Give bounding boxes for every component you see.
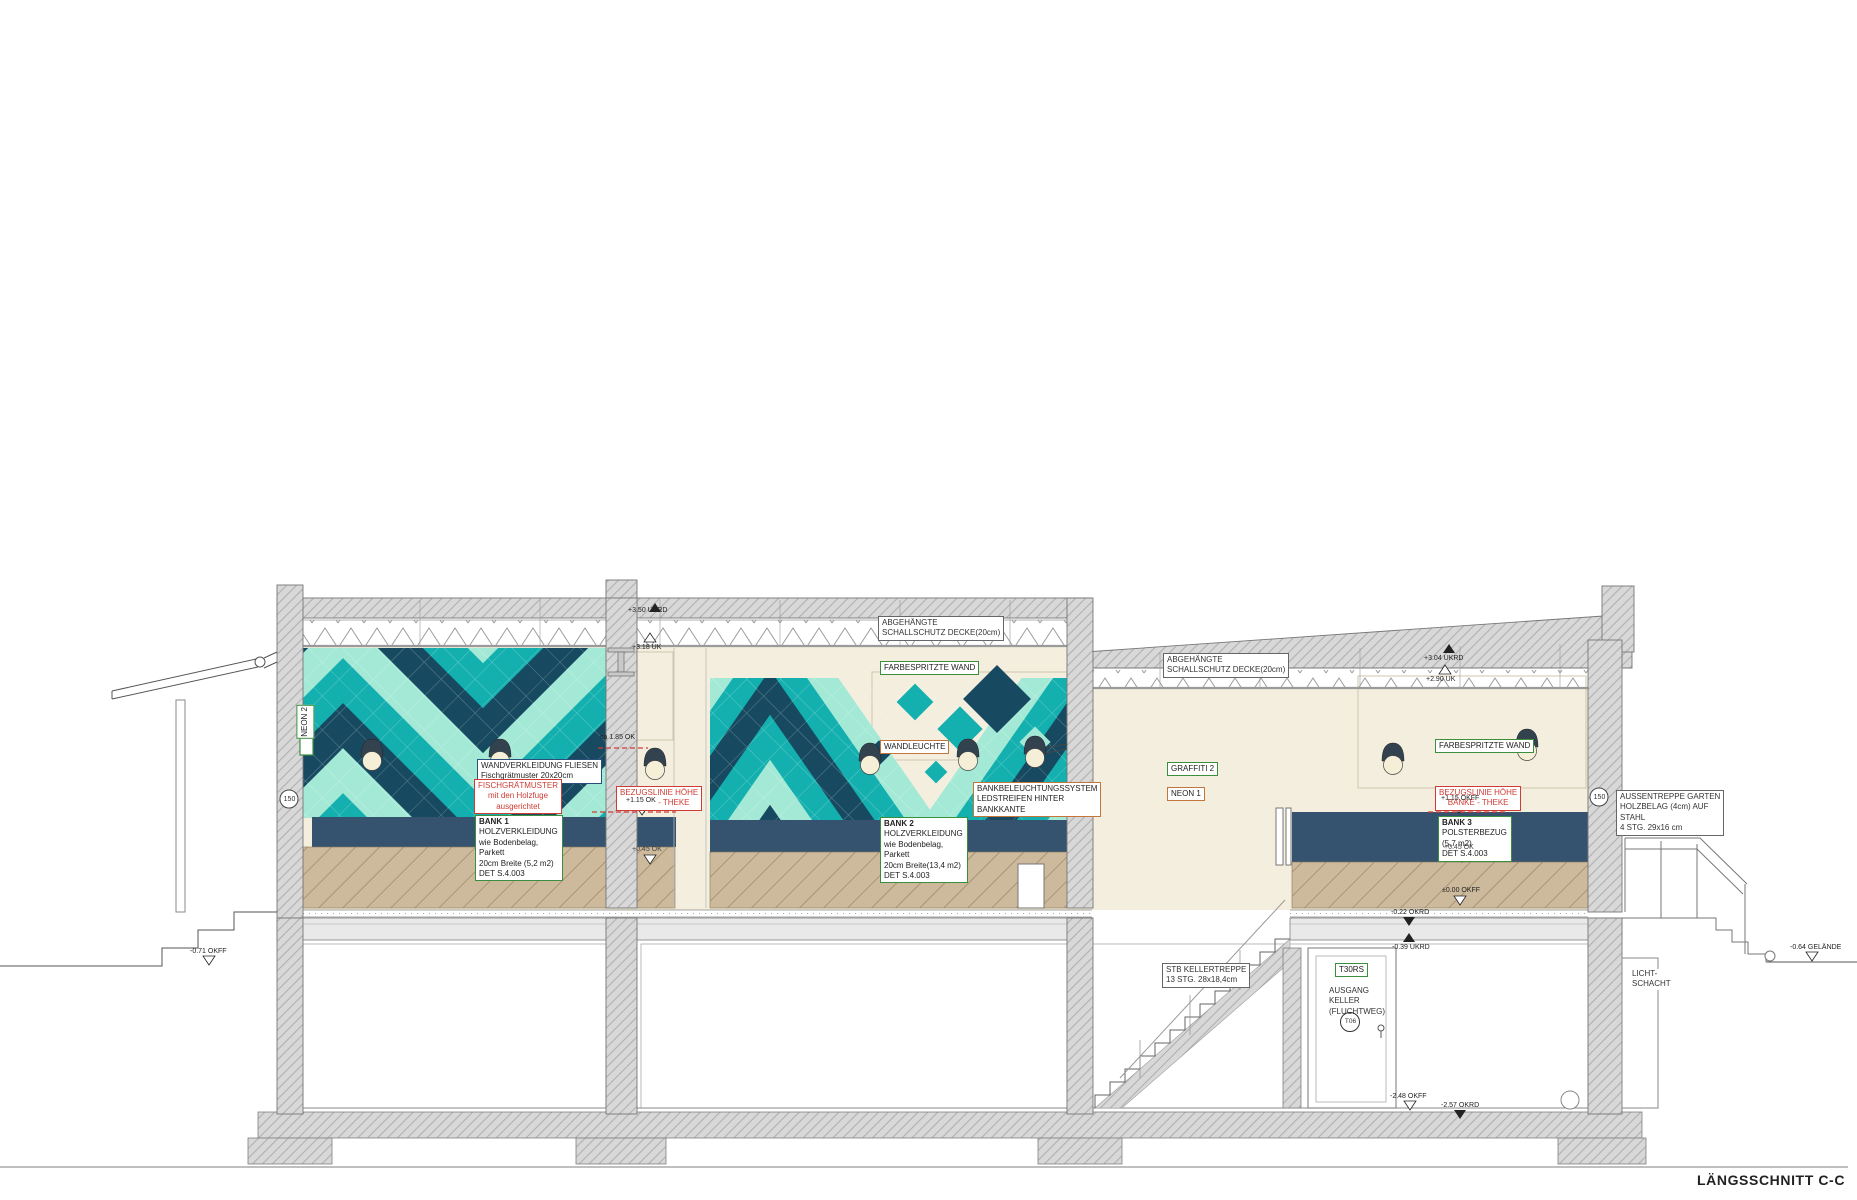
label-garden-stair: AUSSENTREPPE GARTEN HOLZBELAG (4cm) AUF …: [1616, 790, 1724, 836]
level-ceiling-uk-right: +2.90 UK: [1426, 675, 1455, 684]
label-door-tag: T06: [1342, 1018, 1359, 1026]
architectural-section-sheet: NEON 2 WANDVERKLEIDUNG FLIESEN Fischgrät…: [0, 0, 1857, 1200]
level-ground-right: -0.64 GELÄNDE: [1790, 943, 1841, 952]
label-bank1: BANK 1 HOLZVERKLEIDUNG wie Bodenbelag, P…: [475, 815, 563, 881]
level-slab-bottom: -0.39 UKRD: [1392, 943, 1430, 952]
footing: [248, 1138, 332, 1164]
tag-150-right: 150: [1593, 793, 1606, 802]
stair-guard-post: [1276, 808, 1283, 865]
garden-steps: [1700, 918, 1766, 962]
footing: [576, 1138, 666, 1164]
canopy: [112, 659, 256, 691]
basement-slab: [258, 1112, 1642, 1138]
bench-end-mid: [1018, 864, 1044, 908]
section-drawing: [0, 0, 1857, 1200]
label-painted-wall-mid: FARBESPRITZTE WAND: [880, 661, 979, 675]
label-exit: AUSGANG KELLER (FLUCHTWEG): [1329, 986, 1385, 1017]
level-bench-ref-left: +1.15 OK: [626, 796, 656, 805]
level-seat-right: +0.45 OK: [1444, 843, 1474, 852]
label-ceiling-left: ABGEHÄNGTE SCHALLSCHUTZ DECKE(20cm): [878, 616, 1004, 641]
level-floor-zero: ±0.00 OKFF: [1442, 886, 1480, 895]
level-basement-slab: -2.57 OKRD: [1441, 1101, 1479, 1110]
label-neon2: NEON 2: [296, 705, 314, 739]
exterior-left: [0, 652, 277, 966]
label-ceiling-right: ABGEHÄNGTE SCHALLSCHUTZ DECKE(20cm): [1163, 653, 1289, 678]
garden-railing: [1625, 838, 1747, 884]
level-seat-left: +0.45 OK: [632, 845, 662, 854]
label-neon1: NEON 1: [1167, 787, 1205, 801]
entry-door-left: [176, 700, 185, 912]
level-bench-ref-right: +1.15 OKFF: [1441, 794, 1479, 803]
label-light-shaft: LICHT- SCHACHT: [1630, 969, 1673, 990]
level-slab-top: -0.22 OKRD: [1391, 908, 1429, 917]
tag-150-left: 150: [283, 795, 296, 804]
floor-slab: [277, 918, 1622, 940]
level-ground-left: -0.71 OKFF: [190, 947, 227, 956]
wall-right: [1588, 640, 1622, 912]
footing: [1558, 1138, 1646, 1164]
label-bank2: BANK 2 HOLZVERKLEIDUNG wie Bodenbelag, P…: [880, 817, 968, 883]
level-basement-floor: -2.48 OKFF: [1390, 1092, 1427, 1101]
level-roof-uk-left: +3.50 UKRD: [628, 606, 668, 615]
label-bench-lighting: BANKBELEUCHTUNGSSYSTEM LEDSTREIFEN HINTE…: [973, 782, 1101, 817]
entry-steps-left: [0, 912, 277, 966]
label-door-type: T30RS: [1335, 963, 1368, 977]
level-lamp-height: ca 1.85 OK: [600, 733, 635, 742]
level-roof-uk-right: +3.04 UKRD: [1424, 654, 1464, 663]
level-ceiling-uk-left: +3.18 UK: [632, 643, 661, 652]
footing: [1038, 1138, 1122, 1164]
column-mid-right: [1067, 598, 1093, 908]
label-herringbone: FISCHGRÄTMUSTER mit den Holzfuge ausgeri…: [474, 779, 562, 814]
label-basement-stair: STB KELLERTREPPE 13 STG. 28x18,4cm: [1162, 963, 1250, 988]
label-painted-wall-right: FARBESPRITZTE WAND: [1435, 739, 1534, 753]
label-wall-lamp: WANDLEUCHTE: [880, 740, 949, 754]
sheet-title: LÄNGSSCHNITT C-C: [1697, 1171, 1845, 1189]
label-graffiti2: GRAFFITI 2: [1167, 762, 1218, 776]
label-bank3: BANK 3 POLSTERBEZUG (5,7 m2) DET S.4.003: [1438, 816, 1512, 862]
drain-pipe: [1561, 1091, 1579, 1109]
wall-left: [277, 585, 303, 918]
